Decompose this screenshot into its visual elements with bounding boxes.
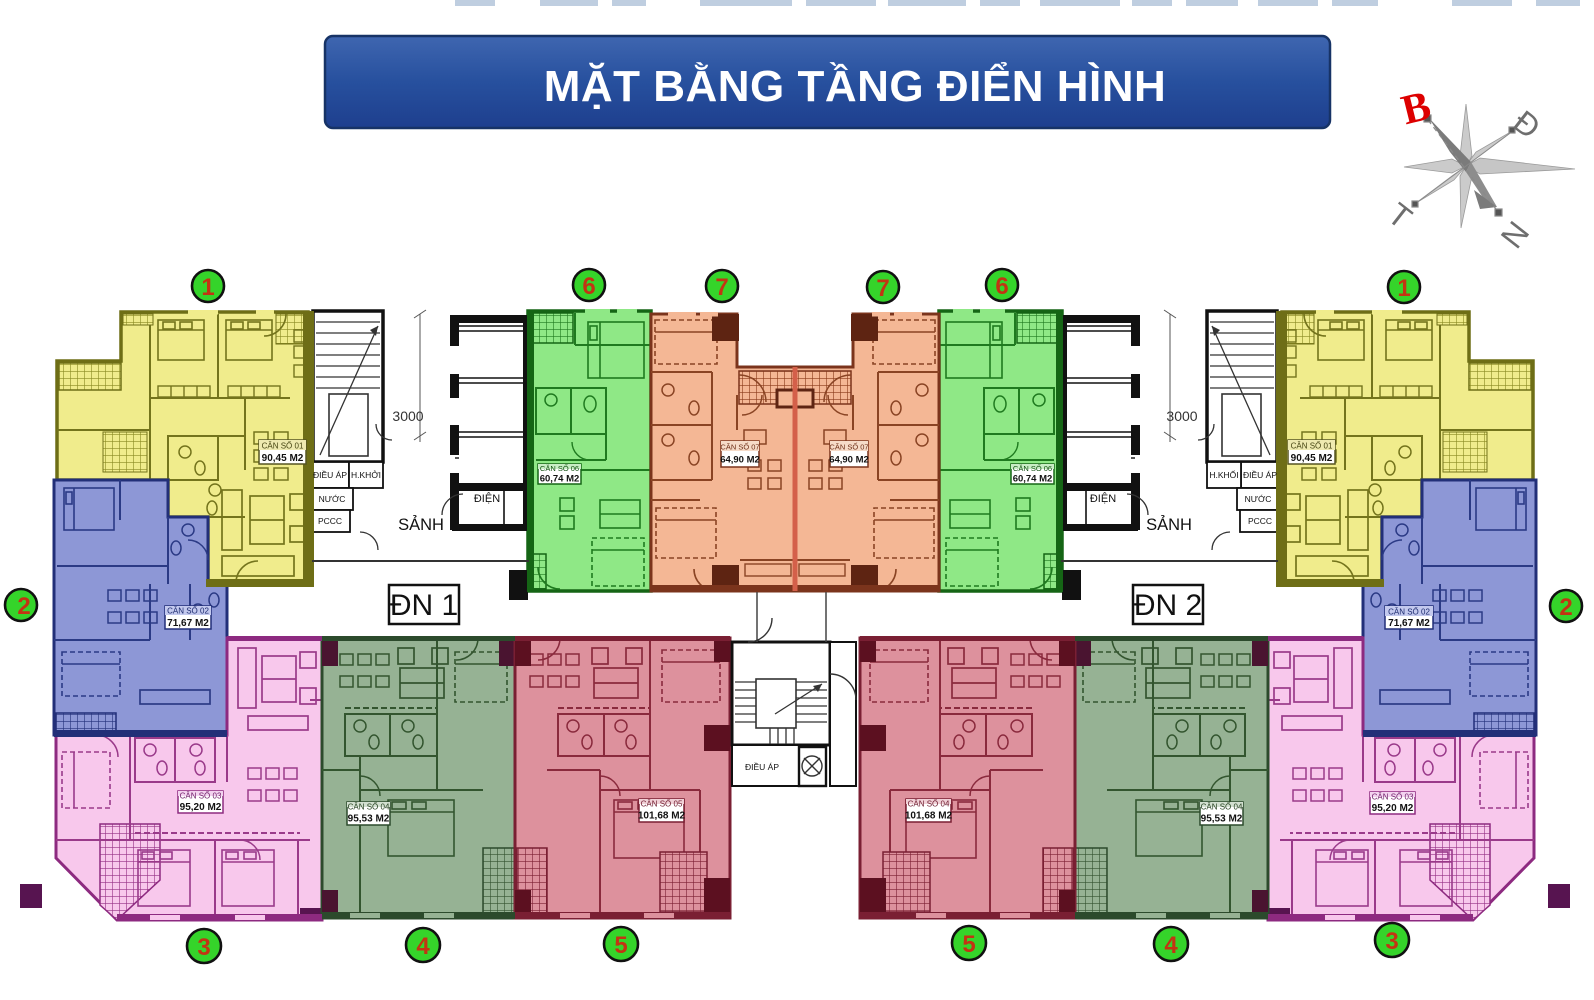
svg-text:NƯỚC: NƯỚC (1245, 494, 1272, 504)
svg-text:2: 2 (1559, 594, 1572, 621)
svg-text:4: 4 (1164, 932, 1178, 959)
svg-text:60,74 M2: 60,74 M2 (1013, 474, 1053, 485)
svg-text:71,67 M2: 71,67 M2 (1388, 618, 1430, 629)
svg-text:CĂN SỐ 02: CĂN SỐ 02 (1388, 607, 1430, 617)
svg-text:2: 2 (17, 593, 30, 620)
svg-text:6: 6 (995, 273, 1008, 300)
svg-text:95,53 M2: 95,53 M2 (348, 814, 390, 825)
svg-text:MẶT BẰNG TẦNG ĐIỂN HÌNH: MẶT BẰNG TẦNG ĐIỂN HÌNH (544, 60, 1167, 111)
svg-text:SẢNH: SẢNH (398, 515, 444, 534)
svg-text:ĐN 2: ĐN 2 (1134, 589, 1202, 622)
svg-text:CĂN SỐ 04: CĂN SỐ 04 (908, 799, 950, 809)
svg-text:CĂN SỐ 01: CĂN SỐ 01 (262, 441, 304, 451)
svg-text:95,20 M2: 95,20 M2 (1372, 803, 1414, 814)
svg-text:ĐIỀU ÁP: ĐIỀU ÁP (745, 762, 779, 772)
svg-text:4: 4 (416, 933, 430, 960)
svg-text:90,45 M2: 90,45 M2 (1291, 453, 1333, 464)
svg-text:71,67 M2: 71,67 M2 (167, 618, 209, 629)
svg-text:Đ: Đ (1507, 103, 1547, 146)
svg-text:B: B (1397, 83, 1435, 134)
svg-text:CĂN SỐ 07: CĂN SỐ 07 (829, 442, 868, 452)
svg-text:7: 7 (715, 274, 728, 301)
svg-text:PCCC: PCCC (318, 516, 342, 526)
svg-text:CĂN SỐ 05: CĂN SỐ 05 (641, 799, 683, 809)
svg-text:ĐN 1: ĐN 1 (390, 589, 458, 622)
svg-text:101,68 M2: 101,68 M2 (905, 811, 953, 822)
svg-text:64,90 M2: 64,90 M2 (829, 455, 869, 466)
svg-text:H.KHỐI: H.KHỐI (1209, 469, 1238, 480)
svg-text:1: 1 (201, 274, 214, 301)
svg-text:N: N (1494, 215, 1537, 255)
svg-text:CĂN SỐ 04: CĂN SỐ 04 (348, 802, 390, 812)
svg-text:3000: 3000 (1166, 408, 1197, 424)
svg-text:CĂN SỐ 06: CĂN SỐ 06 (540, 463, 579, 473)
svg-text:ĐIỀU ÁP: ĐIỀU ÁP (1243, 470, 1277, 480)
svg-text:90,45 M2: 90,45 M2 (262, 453, 304, 464)
svg-text:NƯỚC: NƯỚC (319, 494, 346, 504)
svg-text:95,20 M2: 95,20 M2 (180, 802, 222, 813)
svg-text:7: 7 (876, 275, 889, 302)
svg-text:ĐIỆN: ĐIỆN (474, 492, 500, 505)
svg-text:5: 5 (962, 931, 975, 958)
svg-text:CĂN SỐ 03: CĂN SỐ 03 (180, 791, 222, 801)
svg-text:CĂN SỐ 07: CĂN SỐ 07 (720, 442, 759, 452)
svg-text:1: 1 (1397, 275, 1410, 302)
svg-text:CĂN SỐ 02: CĂN SỐ 02 (167, 606, 209, 616)
svg-text:PCCC: PCCC (1248, 516, 1272, 526)
svg-text:3: 3 (197, 934, 210, 961)
svg-text:5: 5 (614, 932, 627, 959)
svg-text:H.KHỞI: H.KHỞI (351, 469, 381, 480)
svg-text:ĐIỀU ÁP: ĐIỀU ÁP (313, 470, 347, 480)
svg-text:CĂN SỐ 06: CĂN SỐ 06 (1013, 463, 1052, 473)
svg-text:3000: 3000 (392, 408, 423, 424)
svg-text:CĂN SỐ 01: CĂN SỐ 01 (1291, 441, 1333, 451)
svg-text:60,74 M2: 60,74 M2 (540, 474, 580, 485)
svg-text:101,68 M2: 101,68 M2 (638, 811, 686, 822)
svg-text:CĂN SỐ 03: CĂN SỐ 03 (1372, 792, 1414, 802)
svg-text:6: 6 (582, 273, 595, 300)
svg-text:ĐIỆN: ĐIỆN (1090, 492, 1116, 505)
svg-text:3: 3 (1385, 928, 1398, 955)
svg-text:SẢNH: SẢNH (1146, 515, 1192, 534)
svg-text:64,90 M2: 64,90 M2 (720, 455, 760, 466)
svg-text:CĂN SỐ 04: CĂN SỐ 04 (1201, 802, 1243, 812)
svg-text:95,53 M2: 95,53 M2 (1201, 814, 1243, 825)
